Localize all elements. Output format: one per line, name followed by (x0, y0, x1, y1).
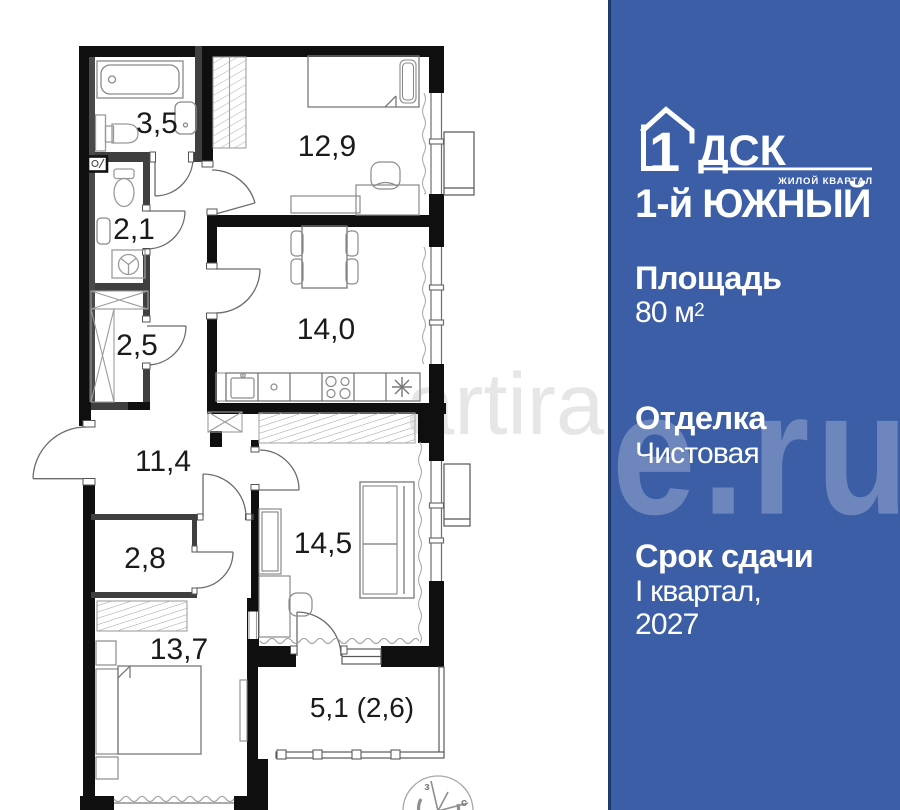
svg-text:2,8: 2,8 (124, 542, 166, 575)
svg-text:1-й ЮЖНЫЙ: 1-й ЮЖНЫЙ (635, 180, 870, 226)
svg-text:14,0: 14,0 (297, 313, 355, 346)
svg-text:12,9: 12,9 (298, 130, 356, 163)
svg-text:2,1: 2,1 (113, 213, 155, 246)
svg-text:с: с (461, 797, 467, 809)
svg-text:11,4: 11,4 (135, 445, 191, 478)
svg-text:1: 1 (649, 120, 680, 183)
svg-text:14,5: 14,5 (294, 527, 352, 560)
svg-text:5,1 (2,6): 5,1 (2,6) (310, 692, 414, 723)
svg-text:13,7: 13,7 (150, 633, 208, 666)
svg-text:3,5: 3,5 (136, 107, 178, 140)
svg-text:з: з (424, 781, 430, 793)
svg-text:2,5: 2,5 (116, 329, 158, 362)
